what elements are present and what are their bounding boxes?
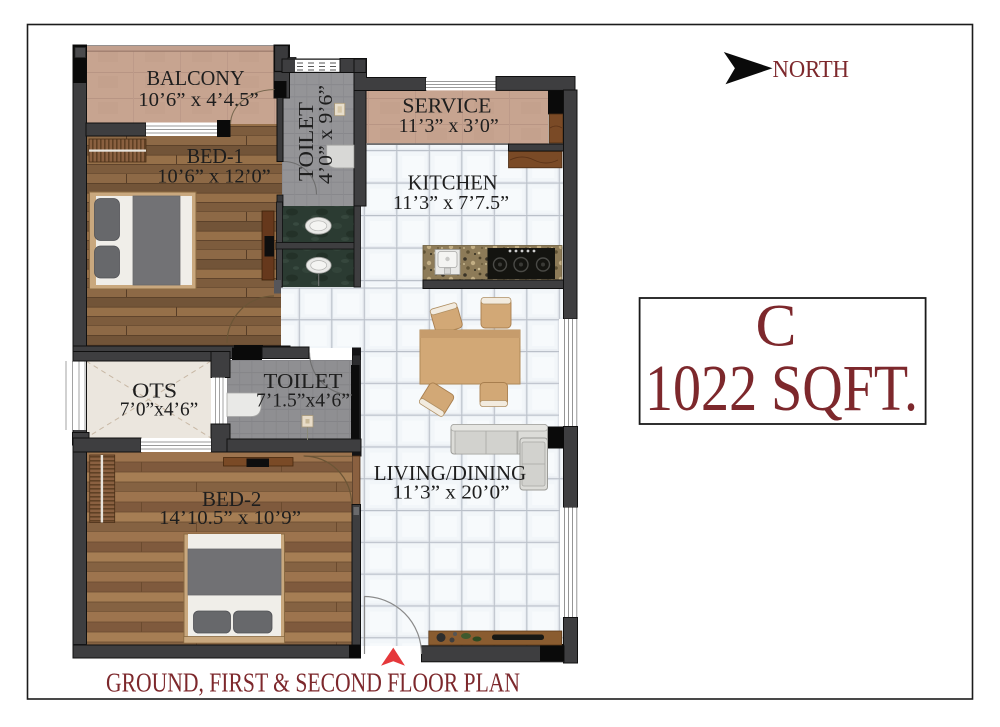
svg-text:14’10.5” x 10’9”: 14’10.5” x 10’9”	[159, 508, 301, 529]
svg-text:NORTH: NORTH	[773, 57, 850, 83]
svg-text:KITCHEN: KITCHEN	[408, 171, 498, 195]
svg-text:C: C	[756, 293, 797, 359]
svg-text:1022 SQFT.: 1022 SQFT.	[645, 352, 918, 425]
svg-text:BALCONY: BALCONY	[147, 66, 245, 90]
svg-text:TOILET: TOILET	[294, 102, 318, 181]
svg-text:TOILET: TOILET	[264, 369, 343, 393]
svg-text:7’1.5”x4’6”: 7’1.5”x4’6”	[256, 391, 350, 412]
svg-text:10’6” x 4’4.5”: 10’6” x 4’4.5”	[138, 90, 259, 111]
svg-text:10’6” x 12’0”: 10’6” x 12’0”	[157, 166, 271, 187]
svg-text:4’0” x 9’6”: 4’0” x 9’6”	[316, 85, 337, 184]
svg-text:LIVING/DINING: LIVING/DINING	[374, 461, 527, 485]
svg-text:GROUND, FIRST & SECOND FLOOR P: GROUND, FIRST & SECOND FLOOR PLAN	[106, 668, 520, 698]
svg-text:11’3” x 20’0”: 11’3” x 20’0”	[393, 483, 510, 504]
svg-text:11’3” x 3’0”: 11’3” x 3’0”	[399, 116, 499, 137]
svg-text:BED-1: BED-1	[187, 144, 244, 168]
svg-text:11’3” x 7’7.5”: 11’3” x 7’7.5”	[393, 193, 509, 214]
svg-text:SERVICE: SERVICE	[402, 94, 491, 118]
svg-text:7’0”x4’6”: 7’0”x4’6”	[120, 400, 199, 421]
